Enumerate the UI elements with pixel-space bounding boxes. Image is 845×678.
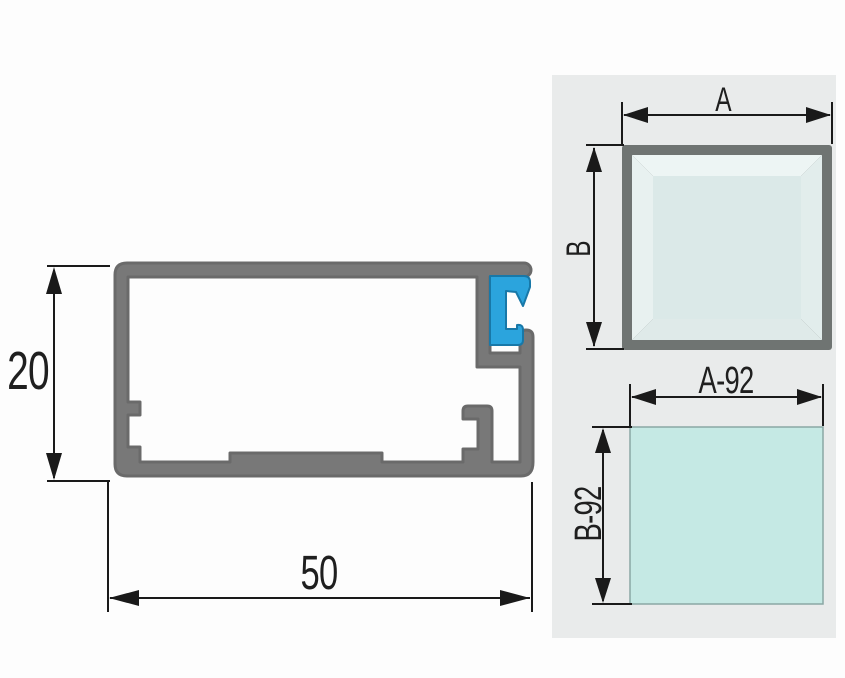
dim-20 bbox=[46, 266, 110, 481]
arrowhead-down bbox=[46, 453, 62, 480]
arrowhead-left bbox=[109, 590, 139, 606]
assembly-panel bbox=[552, 75, 836, 638]
glazing-clip bbox=[490, 276, 530, 345]
profile-body bbox=[115, 263, 533, 476]
frame-diagram bbox=[622, 145, 832, 350]
frame-glass-field bbox=[653, 176, 801, 319]
dim-20-label: 20 bbox=[7, 344, 49, 398]
frame-bevel-right bbox=[801, 155, 822, 340]
dim-A-92-label: A-92 bbox=[699, 362, 754, 400]
glass-pane bbox=[630, 427, 823, 604]
profile-cross-section bbox=[46, 263, 533, 612]
dim-B-label: B bbox=[562, 241, 596, 257]
dim-A-label: A bbox=[715, 83, 731, 117]
dim-B-92-label: B-92 bbox=[570, 487, 608, 542]
arrowhead-right bbox=[500, 590, 530, 606]
frame-bevel-top bbox=[632, 155, 822, 176]
technical-drawing-page: 20 50 A B A-92 B-92 bbox=[0, 0, 845, 678]
arrowhead-up bbox=[46, 267, 62, 294]
dim-50-label: 50 bbox=[300, 550, 337, 598]
frame-bevel-left bbox=[632, 155, 653, 340]
frame-bevel-bottom bbox=[632, 319, 822, 340]
glass-diagram bbox=[630, 427, 823, 604]
